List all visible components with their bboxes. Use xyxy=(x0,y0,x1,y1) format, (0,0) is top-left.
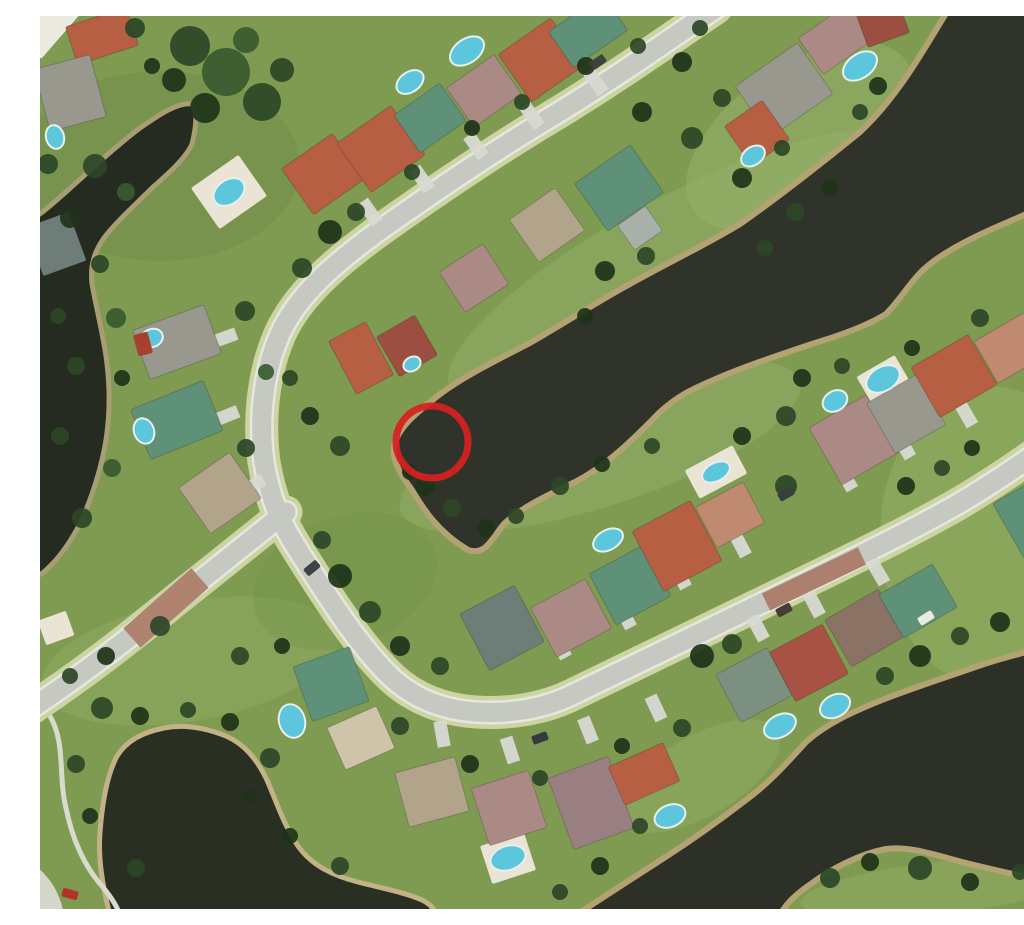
tree xyxy=(243,789,257,803)
tree xyxy=(328,564,352,588)
tree xyxy=(632,818,648,834)
tree xyxy=(673,719,691,737)
tree xyxy=(990,612,1010,632)
tree xyxy=(820,868,840,888)
tree xyxy=(461,755,479,773)
tree xyxy=(477,519,495,537)
tree xyxy=(258,364,274,380)
tree xyxy=(722,634,742,654)
tree xyxy=(331,857,349,875)
tree xyxy=(221,713,239,731)
tree xyxy=(260,748,280,768)
tree xyxy=(964,440,980,456)
tree xyxy=(82,808,98,824)
tree xyxy=(514,94,530,110)
tree xyxy=(170,26,210,66)
tree xyxy=(732,168,752,188)
tree xyxy=(114,370,130,386)
tree xyxy=(282,370,298,386)
tree xyxy=(237,439,255,457)
tree xyxy=(180,702,196,718)
tree xyxy=(202,48,250,96)
tree xyxy=(443,499,461,517)
tree xyxy=(91,697,113,719)
tree xyxy=(83,154,107,178)
tree xyxy=(50,308,66,324)
tree xyxy=(551,477,569,495)
tree xyxy=(614,738,630,754)
tree xyxy=(72,508,92,528)
tree xyxy=(637,247,655,265)
tree xyxy=(292,258,312,278)
tree xyxy=(51,427,69,445)
tree xyxy=(733,427,751,445)
tree xyxy=(904,340,920,356)
tree xyxy=(934,460,950,476)
tree xyxy=(852,104,868,120)
tree xyxy=(591,857,609,875)
satellite-image xyxy=(40,16,1024,909)
tree xyxy=(103,459,121,477)
tree xyxy=(876,667,894,685)
tree xyxy=(313,531,331,549)
tree xyxy=(270,58,294,82)
tree xyxy=(908,856,932,880)
tree xyxy=(692,20,708,36)
tree xyxy=(672,52,692,72)
tree xyxy=(552,884,568,900)
tree xyxy=(359,601,381,623)
tree xyxy=(632,102,652,122)
tree xyxy=(404,164,420,180)
tree xyxy=(117,183,135,201)
tree xyxy=(162,68,186,92)
tree xyxy=(532,770,548,786)
tree xyxy=(757,240,773,256)
tree xyxy=(630,38,646,54)
tree xyxy=(971,309,989,327)
tree xyxy=(97,647,115,665)
tree xyxy=(951,627,969,645)
tree xyxy=(861,853,879,871)
tree xyxy=(330,436,350,456)
tree xyxy=(131,707,149,725)
tree xyxy=(190,93,220,123)
tree xyxy=(125,18,145,38)
tree xyxy=(909,645,931,667)
tree xyxy=(897,477,915,495)
tree xyxy=(231,647,249,665)
tree xyxy=(431,657,449,675)
tree xyxy=(150,616,170,636)
tree xyxy=(595,261,615,281)
tree xyxy=(318,220,342,244)
tree xyxy=(106,308,126,328)
tree xyxy=(390,636,410,656)
tree xyxy=(127,859,145,877)
tree xyxy=(793,369,811,387)
tree xyxy=(690,644,714,668)
tree xyxy=(776,406,796,426)
tree xyxy=(681,127,703,149)
tree xyxy=(644,438,660,454)
tree xyxy=(391,717,409,735)
tree xyxy=(144,58,160,74)
tree xyxy=(577,308,593,324)
tree xyxy=(235,301,255,321)
tree xyxy=(67,755,85,773)
tree xyxy=(713,89,731,107)
tree xyxy=(282,828,298,844)
tree xyxy=(786,203,804,221)
tree xyxy=(508,508,524,524)
tree xyxy=(274,638,290,654)
tree xyxy=(464,120,480,136)
tree xyxy=(834,358,850,374)
tree xyxy=(347,203,365,221)
tree xyxy=(961,873,979,891)
aerial-scene xyxy=(40,16,1024,909)
tree xyxy=(60,208,80,228)
tree xyxy=(243,83,281,121)
tree xyxy=(67,357,85,375)
tree xyxy=(62,668,78,684)
tree xyxy=(774,140,790,156)
tree xyxy=(233,27,259,53)
tree xyxy=(869,77,887,95)
tree xyxy=(301,407,319,425)
tree xyxy=(91,255,109,273)
tree xyxy=(594,456,610,472)
tree xyxy=(822,180,838,196)
